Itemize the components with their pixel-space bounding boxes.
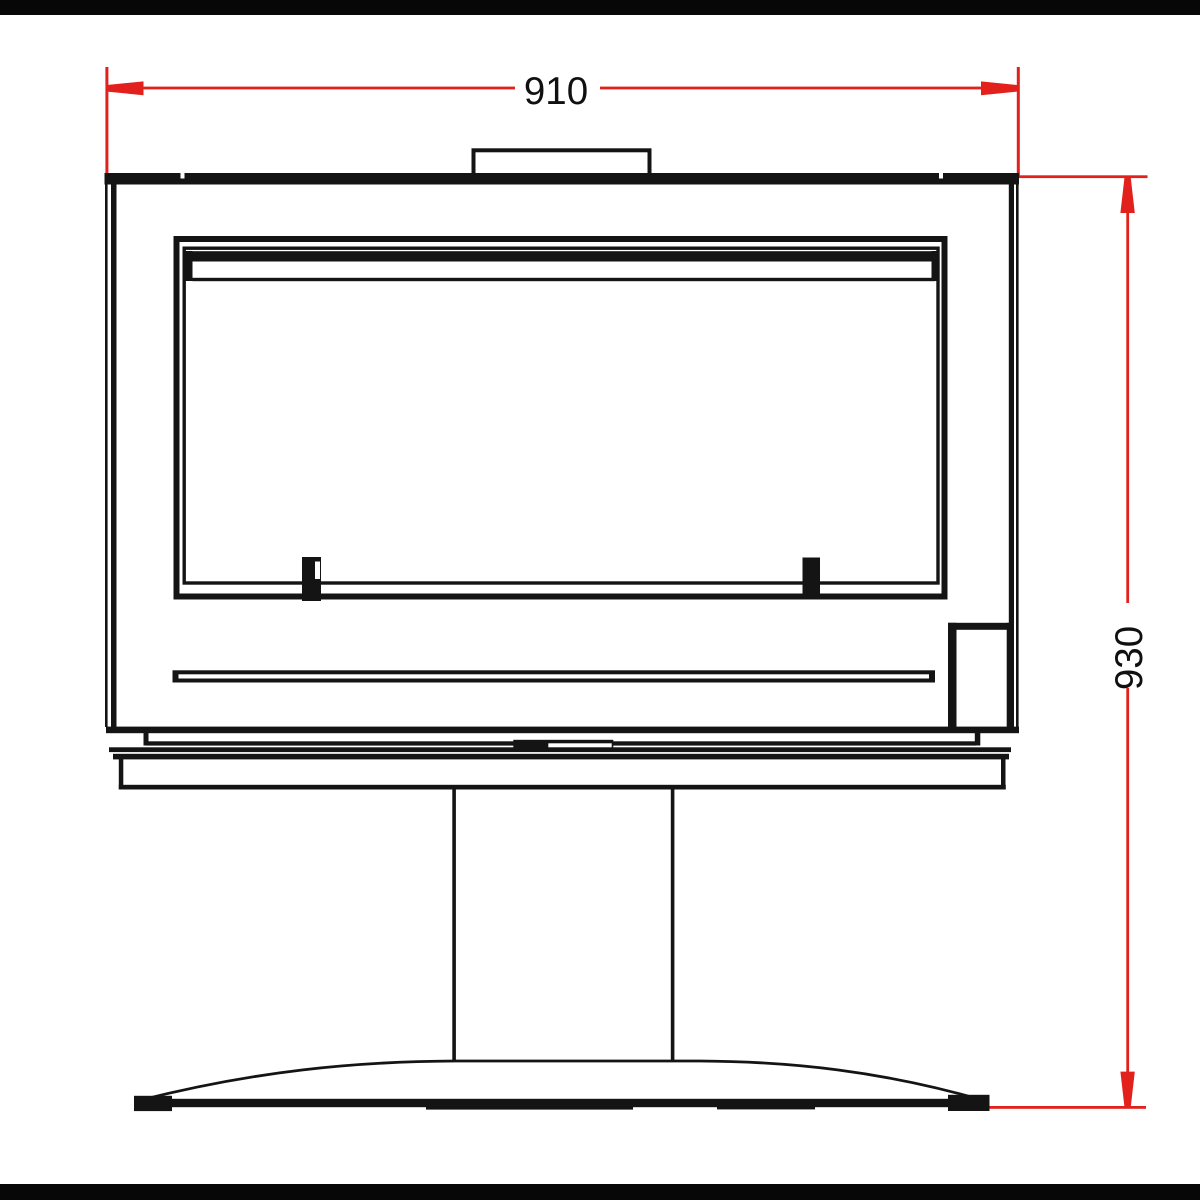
svg-text:930: 930: [1108, 626, 1151, 690]
svg-text:910: 910: [524, 70, 588, 113]
